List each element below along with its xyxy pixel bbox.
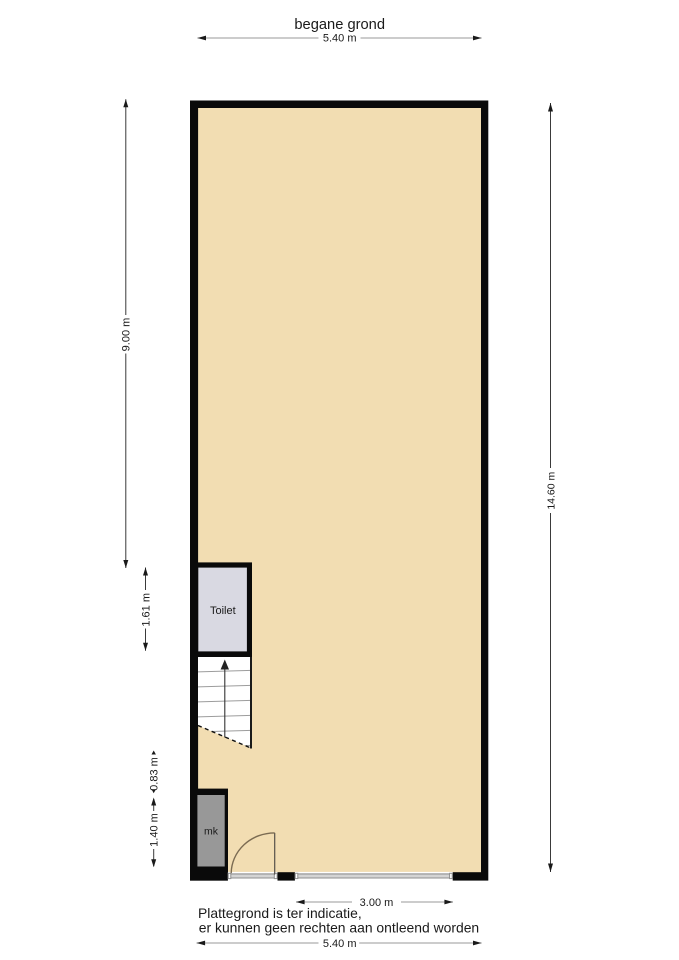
- svg-text:5.40 m: 5.40 m: [323, 938, 357, 950]
- svg-text:begane grond: begane grond: [294, 17, 385, 33]
- svg-text:0.83 m: 0.83 m: [148, 757, 160, 791]
- svg-text:9.00 m: 9.00 m: [121, 318, 133, 352]
- svg-text:14.60 m: 14.60 m: [545, 471, 557, 509]
- svg-text:er kunnen geen rechten aan ont: er kunnen geen rechten aan ontleend word…: [199, 919, 479, 935]
- svg-text:1.61 m: 1.61 m: [140, 593, 152, 627]
- svg-text:3.00 m: 3.00 m: [360, 897, 394, 909]
- svg-text:1.40 m: 1.40 m: [148, 813, 160, 847]
- svg-text:5.40 m: 5.40 m: [323, 33, 357, 45]
- svg-text:mk: mk: [204, 826, 219, 838]
- svg-text:Toilet: Toilet: [210, 605, 236, 617]
